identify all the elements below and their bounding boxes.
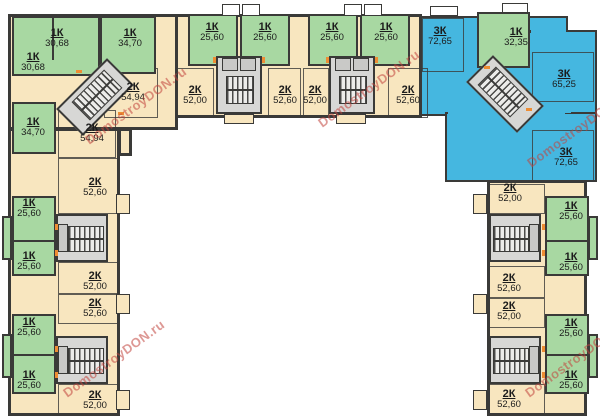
corridor-bay bbox=[116, 294, 130, 314]
apartment-label[interactable]: 1К25,60 bbox=[243, 21, 287, 44]
staircase bbox=[493, 226, 529, 252]
apartment-label[interactable]: 1К25,60 bbox=[364, 21, 408, 44]
corridor-bay bbox=[116, 194, 130, 214]
apartment-label[interactable]: 2К52,00 bbox=[293, 84, 337, 107]
apartment-label[interactable]: 1К25,60 bbox=[7, 250, 51, 273]
elevator bbox=[529, 224, 539, 252]
apartment-label[interactable]: 2К52,00 bbox=[173, 84, 217, 107]
floor-plan: 1К30,68 1К30,68 1К34,70 1К25,60 1К25,60 … bbox=[0, 0, 600, 420]
balcony bbox=[364, 4, 382, 16]
apartment-label[interactable]: 2К52,00 bbox=[487, 300, 531, 323]
entrance-porch bbox=[224, 114, 254, 124]
apartment-label[interactable]: 3К65,25 bbox=[542, 68, 586, 91]
corridor-bay bbox=[473, 390, 487, 410]
elevator bbox=[222, 58, 238, 71]
balcony bbox=[502, 3, 528, 13]
staircase bbox=[68, 226, 104, 252]
staircase bbox=[493, 348, 529, 374]
corridor-bay bbox=[473, 194, 487, 214]
elevator bbox=[58, 224, 68, 252]
staircase bbox=[226, 76, 254, 104]
apartment-label[interactable]: 1К25,60 bbox=[190, 21, 234, 44]
apartment-label[interactable]: 1К25,60 bbox=[7, 316, 51, 339]
elevator bbox=[335, 58, 351, 71]
apartment-label[interactable]: 3К72,65 bbox=[418, 25, 462, 48]
apartment-label[interactable]: 2К52,60 bbox=[386, 84, 430, 107]
apartment-label[interactable]: 1К25,60 bbox=[549, 251, 593, 274]
elevator bbox=[353, 58, 369, 71]
apartment-label[interactable]: 2К52,60 bbox=[73, 297, 117, 320]
apartment-label[interactable]: 1К25,60 bbox=[310, 21, 354, 44]
apartment-label[interactable]: 1К25,60 bbox=[549, 317, 593, 340]
apartment-label[interactable]: 1К30,68 bbox=[11, 51, 55, 74]
apartment-label[interactable]: 1К25,60 bbox=[7, 197, 51, 220]
balcony bbox=[344, 4, 362, 16]
balcony bbox=[430, 6, 458, 16]
elevator bbox=[529, 346, 539, 374]
balcony bbox=[222, 4, 240, 16]
elevator bbox=[240, 58, 256, 71]
apartment-label[interactable]: 1К25,60 bbox=[549, 200, 593, 223]
apartment-label[interactable]: 1К34,70 bbox=[108, 27, 152, 50]
apartment-label[interactable]: 1К25,60 bbox=[7, 369, 51, 392]
balcony bbox=[242, 4, 260, 16]
apartment-label[interactable]: 2К52,00 bbox=[488, 182, 532, 205]
apartment-label[interactable]: 1К32,35 bbox=[494, 26, 538, 49]
elevator bbox=[58, 346, 68, 374]
apartment-label[interactable]: 2К52,60 bbox=[73, 176, 117, 199]
apartment-label[interactable]: 2К52,00 bbox=[73, 270, 117, 293]
apartment-label[interactable]: 1К30,68 bbox=[35, 27, 79, 50]
apartment-label[interactable]: 2К52,60 bbox=[487, 272, 531, 295]
apartment-label[interactable]: 1К34,70 bbox=[11, 116, 55, 139]
corridor-bay bbox=[116, 390, 130, 410]
left-wing-step bbox=[118, 128, 132, 156]
corridor-bay bbox=[473, 294, 487, 314]
